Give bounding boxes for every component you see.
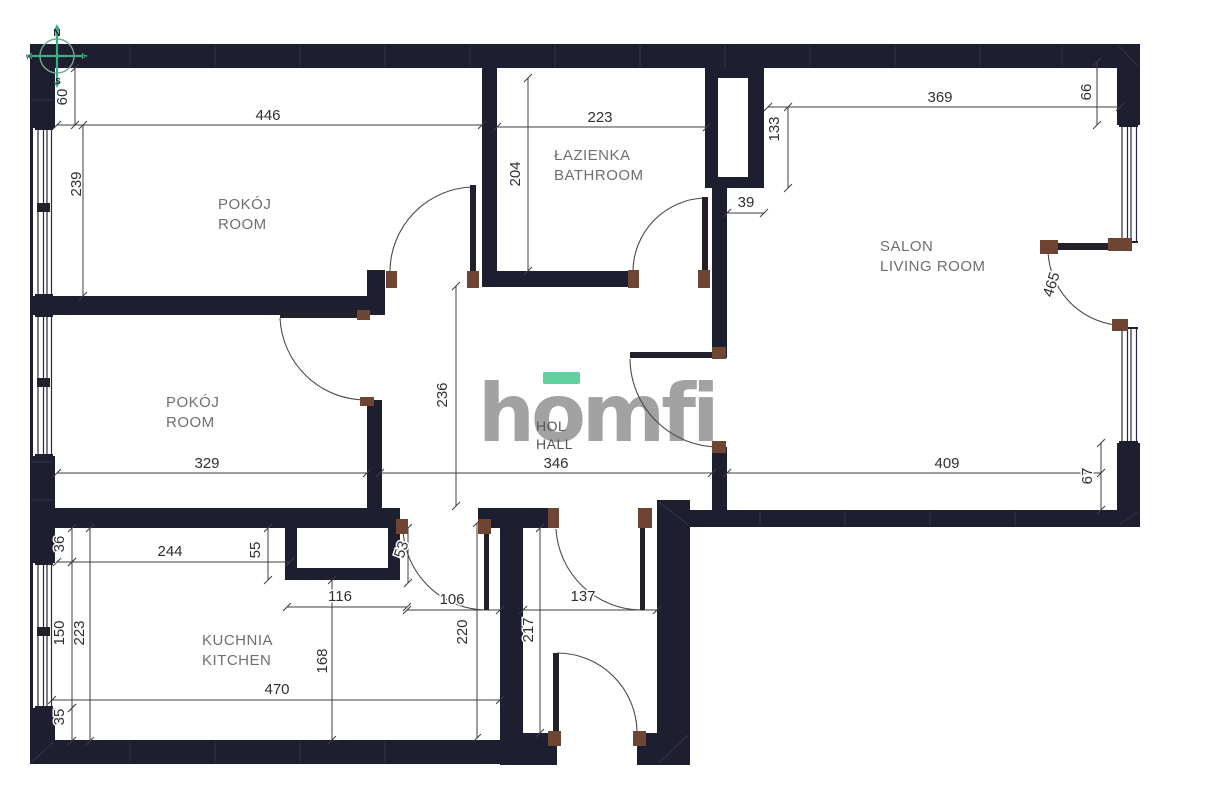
- window: [1117, 323, 1140, 447]
- room-label-line: ŁAZIENKA: [554, 147, 631, 164]
- floor-plan-page: homfi44622336939329346409244116106137470…: [0, 0, 1208, 811]
- wall-segment: [367, 270, 385, 315]
- window-end-cap: [1119, 121, 1138, 127]
- door-jamb: [638, 508, 652, 528]
- door-leaf: [484, 528, 489, 610]
- dimension-label: 236: [434, 382, 451, 407]
- wall-segment: [482, 44, 497, 287]
- room-label-line: LIVING ROOM: [880, 258, 986, 275]
- wall-segment: [705, 68, 764, 78]
- door-jamb: [357, 310, 370, 320]
- door-jamb: [1108, 238, 1132, 251]
- window-mullion: [37, 627, 50, 636]
- compass-letter-s: S: [55, 77, 61, 86]
- window-mullion: [37, 378, 50, 387]
- door-jamb: [1112, 319, 1128, 331]
- wall-segment: [712, 188, 727, 358]
- wall-segment: [705, 177, 764, 188]
- door-jamb: [712, 347, 726, 359]
- window-end-cap: [35, 124, 53, 130]
- door-leaf: [640, 525, 645, 610]
- dimension-label: 133: [766, 116, 783, 141]
- dimension-label: 244: [157, 543, 182, 560]
- dimension-label: 220: [454, 619, 471, 644]
- wall-segment: [657, 500, 690, 765]
- room-label-line: SALON: [880, 238, 933, 255]
- dimension-label: 168: [314, 648, 331, 673]
- wall-segment: [705, 44, 718, 188]
- door-leaf: [470, 185, 476, 273]
- compass-letter-e: E: [83, 54, 88, 61]
- homfi-logo: homfi: [478, 367, 716, 460]
- wall-segment: [30, 44, 1140, 68]
- room-label-line: ROOM: [218, 216, 267, 233]
- floor-plan: homfi44622336939329346409244116106137470…: [0, 0, 1208, 811]
- window-end-cap: [35, 454, 53, 460]
- window-mullion: [37, 203, 50, 212]
- room-label-line: ROOM: [166, 414, 215, 431]
- door-jamb: [548, 731, 561, 746]
- door-jamb: [360, 397, 374, 406]
- dimension-label: 67: [1079, 468, 1096, 485]
- door-jamb: [1040, 240, 1058, 254]
- floor-plan-canvas: homfi44622336939329346409244116106137470…: [0, 0, 1208, 811]
- wall-segment: [482, 271, 637, 287]
- wall-segment: [30, 508, 400, 528]
- wall-segment: [748, 44, 764, 188]
- homfi-logo-accent-bar: [543, 372, 580, 384]
- window-end-cap: [35, 559, 53, 565]
- room-label-line: POKÓJ: [218, 196, 271, 213]
- window-end-cap: [35, 311, 53, 317]
- dimension-label: 36: [51, 536, 68, 553]
- dimension-label: 35: [51, 709, 68, 726]
- dimension-label: 116: [328, 588, 352, 605]
- dimension-label: 150: [51, 620, 68, 645]
- compass-letter-w: W: [26, 54, 33, 61]
- dimension-label: 204: [507, 161, 524, 186]
- room-label-line: POKÓJ: [166, 394, 219, 411]
- dimension-label: 223: [71, 620, 88, 645]
- room-label-line: KUCHNIA: [202, 632, 273, 649]
- window: [33, 311, 55, 460]
- homfi-logo-text: homfi: [478, 367, 716, 460]
- dimension-label: 369: [927, 89, 952, 106]
- dimension-label: 346: [543, 455, 568, 472]
- door-jamb: [396, 519, 408, 534]
- door-jamb: [386, 271, 397, 288]
- dimension-label: 223: [587, 109, 612, 126]
- dimension-label: 106: [439, 591, 464, 608]
- room-label-line: BATHROOM: [554, 167, 644, 184]
- balcony-door-opening: [1117, 243, 1140, 327]
- door-jamb: [698, 270, 710, 288]
- door-leaf: [280, 312, 367, 318]
- wall-segment: [30, 740, 507, 764]
- door-leaf: [702, 197, 708, 273]
- wall-segment: [657, 510, 1140, 527]
- room-label-line: HALL: [536, 436, 573, 452]
- wall-segment: [285, 568, 400, 580]
- dimension-label: 60: [54, 89, 71, 106]
- door-jamb: [712, 441, 726, 453]
- dimension-label: 409: [934, 455, 959, 472]
- room-label-line: KITCHEN: [202, 652, 271, 669]
- dimension-label: 66: [1078, 84, 1095, 101]
- dimension-label: 55: [247, 542, 264, 559]
- door-leaf: [630, 352, 720, 358]
- window: [1117, 121, 1140, 247]
- room-label-line: HOL: [536, 418, 566, 434]
- wall-segment: [367, 400, 382, 510]
- dimension-label: 329: [194, 455, 219, 472]
- dimension-label: 239: [68, 171, 85, 196]
- window-end-cap: [35, 294, 53, 300]
- dimension-label: 217: [520, 617, 537, 642]
- door-jamb: [467, 271, 479, 288]
- door-leaf: [553, 653, 559, 733]
- door-jamb: [478, 519, 491, 534]
- door-jamb: [628, 270, 639, 288]
- dimension-label: 137: [570, 588, 595, 605]
- compass-letter-n: N: [53, 28, 60, 39]
- dimension-label: 470: [264, 681, 289, 698]
- door-jamb: [548, 508, 559, 528]
- dimension-label: 446: [255, 107, 280, 124]
- door-jamb: [633, 731, 646, 746]
- window: [33, 124, 55, 300]
- dimension-label: 39: [738, 194, 755, 211]
- window-end-cap: [1119, 441, 1138, 447]
